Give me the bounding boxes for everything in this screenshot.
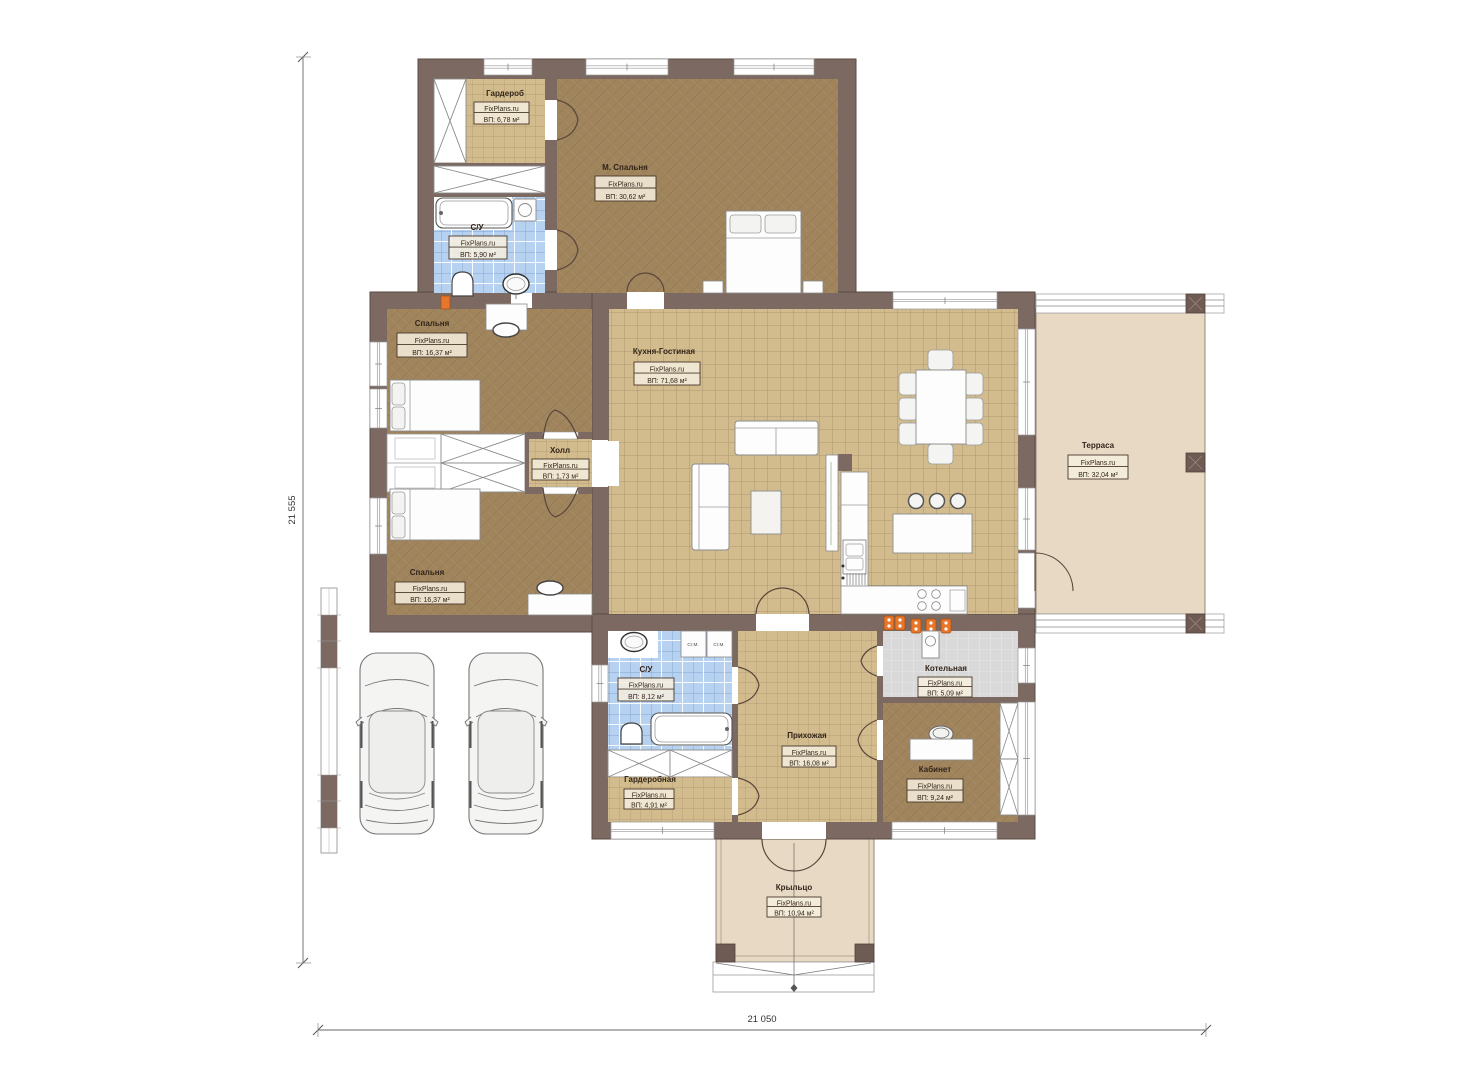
svg-text:ВП: 32,04 м²: ВП: 32,04 м² [1078, 472, 1118, 479]
svg-text:ВП: 4,91 м²: ВП: 4,91 м² [631, 802, 667, 809]
svg-text:FixPlans.ru: FixPlans.ru [792, 750, 827, 757]
svg-text:Ст.М.: Ст.М. [713, 642, 724, 647]
svg-text:ВП: 9,24 м²: ВП: 9,24 м² [917, 795, 953, 802]
svg-text:FixPlans.ru: FixPlans.ru [777, 900, 812, 907]
svg-text:FixPlans.ru: FixPlans.ru [461, 241, 496, 248]
svg-text:Холл: Холл [550, 446, 570, 455]
svg-text:Прихожая: Прихожая [787, 731, 827, 740]
svg-text:FixPlans.ru: FixPlans.ru [484, 106, 519, 113]
svg-text:ВП: 8,12 м²: ВП: 8,12 м² [628, 694, 664, 701]
svg-text:21 555: 21 555 [287, 495, 298, 524]
svg-text:ВП: 10,94 м²: ВП: 10,94 м² [774, 910, 814, 917]
svg-text:С/У: С/У [471, 223, 485, 232]
svg-text:FixPlans.ru: FixPlans.ru [632, 792, 667, 799]
svg-text:С/У: С/У [640, 665, 654, 674]
svg-text:ВП: 16,37 м²: ВП: 16,37 м² [412, 350, 452, 357]
svg-text:FixPlans.ru: FixPlans.ru [650, 367, 685, 374]
svg-text:FixPlans.ru: FixPlans.ru [918, 784, 953, 791]
svg-text:Кухня-Гостиная: Кухня-Гостиная [633, 347, 696, 356]
svg-text:Крыльцо: Крыльцо [776, 883, 813, 892]
svg-text:ВП: 5,09 м²: ВП: 5,09 м² [927, 690, 963, 697]
svg-text:Ст.М.: Ст.М. [687, 642, 698, 647]
svg-text:М. Спальня: М. Спальня [602, 163, 648, 172]
svg-text:Котельная: Котельная [925, 664, 967, 673]
svg-text:FixPlans.ru: FixPlans.ru [608, 182, 643, 189]
svg-text:Терраса: Терраса [1082, 441, 1115, 450]
svg-text:ВП: 16,37 м²: ВП: 16,37 м² [410, 597, 450, 604]
svg-text:FixPlans.ru: FixPlans.ru [629, 683, 664, 690]
svg-text:Кабинет: Кабинет [919, 765, 951, 774]
svg-text:ВП: 6,78 м²: ВП: 6,78 м² [484, 117, 520, 124]
svg-text:21 050: 21 050 [747, 1014, 776, 1025]
svg-text:ВП: 30,62 м²: ВП: 30,62 м² [606, 194, 646, 201]
svg-text:Спальня: Спальня [410, 568, 445, 577]
svg-text:FixPlans.ru: FixPlans.ru [413, 586, 448, 593]
svg-text:ВП: 1,73 м²: ВП: 1,73 м² [543, 473, 579, 480]
svg-text:FixPlans.ru: FixPlans.ru [1081, 460, 1116, 467]
svg-text:FixPlans.ru: FixPlans.ru [543, 463, 578, 470]
svg-text:ВП: 5,90 м²: ВП: 5,90 м² [460, 252, 496, 259]
svg-text:Гардеробная: Гардеробная [624, 775, 676, 784]
svg-text:ВП: 16,08 м²: ВП: 16,08 м² [789, 760, 829, 767]
svg-text:Гардероб: Гардероб [486, 89, 524, 98]
svg-text:FixPlans.ru: FixPlans.ru [415, 338, 450, 345]
svg-text:Спальня: Спальня [415, 319, 450, 328]
svg-text:FixPlans.ru: FixPlans.ru [928, 680, 963, 687]
svg-text:ВП: 71,68 м²: ВП: 71,68 м² [647, 378, 687, 385]
